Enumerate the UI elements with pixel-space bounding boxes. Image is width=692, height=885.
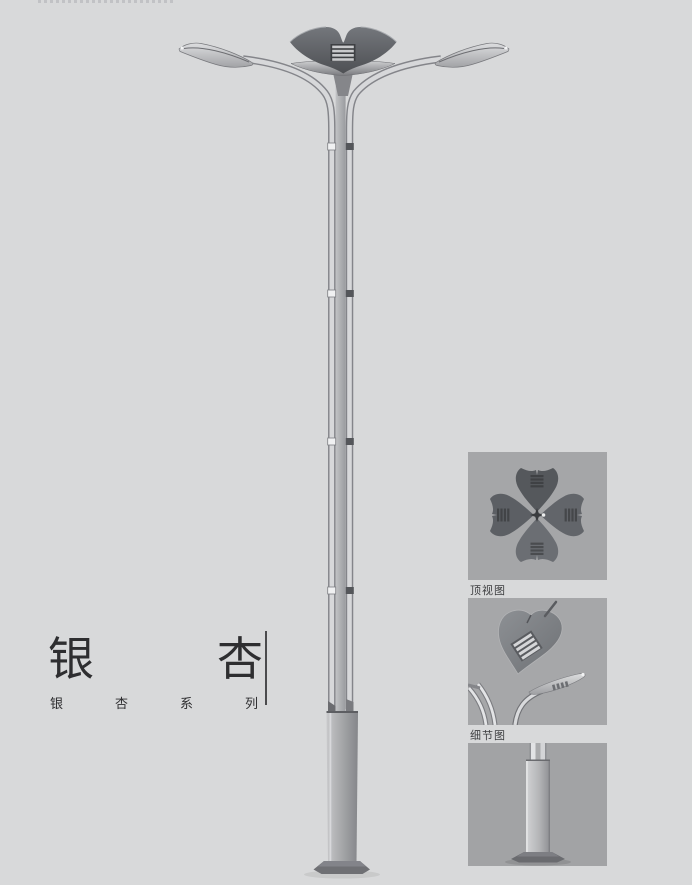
product-series-char: 杏 (115, 693, 128, 712)
base-view-illustration (468, 743, 607, 866)
product-series: 银 杏 系 列 (50, 693, 258, 712)
title-divider (265, 631, 267, 705)
product-title: 银 杏 (48, 634, 263, 685)
detail-view-panel (468, 598, 607, 725)
detail-view-caption: 细节图 (470, 727, 506, 743)
base-view-panel (468, 743, 607, 866)
pole-base (304, 711, 380, 879)
product-title-char: 银 (48, 634, 94, 685)
left-lamp-head (179, 43, 253, 67)
detail-view-illustration (468, 598, 607, 725)
top-view-panel (468, 452, 607, 580)
product-series-char: 银 (50, 693, 63, 712)
product-series-char: 系 (180, 693, 193, 712)
base-column (526, 760, 550, 853)
top-view-caption: 顶视图 (470, 582, 506, 598)
right-lamp-head (435, 43, 509, 67)
top-view-illustration (468, 452, 607, 580)
base-pole-rails (530, 743, 547, 761)
crown-vent-grille (331, 44, 356, 61)
product-series-char: 列 (245, 693, 258, 712)
product-title-char: 杏 (217, 634, 263, 685)
catalog-page: 银 杏 银 杏 系 列 (0, 0, 692, 885)
